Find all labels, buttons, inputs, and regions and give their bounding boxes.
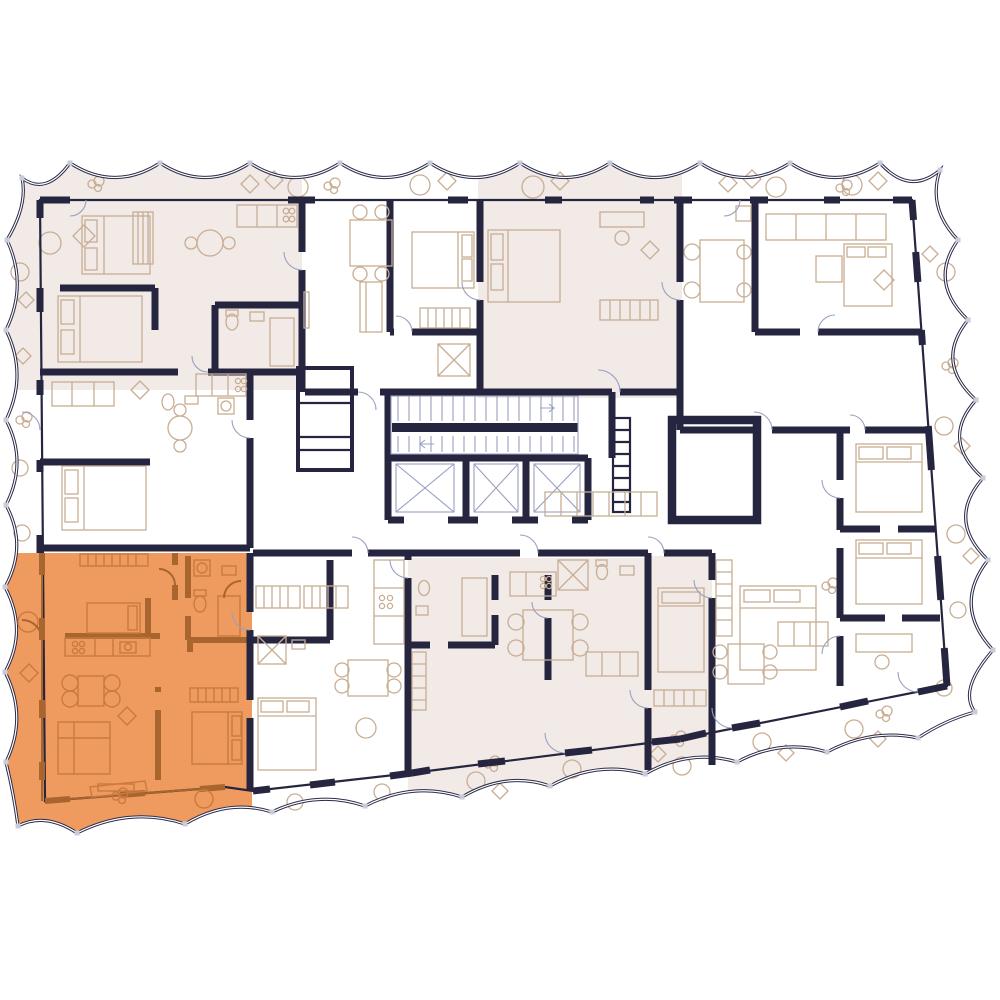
unit-bottom-center[interactable] (408, 553, 648, 773)
unit-left-middle[interactable] (40, 372, 250, 548)
unit-highlighted[interactable] (2, 553, 252, 843)
unit-top-right[interactable] (680, 200, 921, 332)
unit-top-center[interactable] (480, 200, 680, 392)
floor-plan (0, 0, 1000, 1000)
floor-plan-canvas (0, 0, 1000, 1000)
stair-divider (392, 423, 578, 432)
unit-bottom-left-middle[interactable] (253, 553, 408, 791)
unit-bottom-strip[interactable] (648, 553, 712, 765)
unit-bottom-right[interactable] (712, 553, 942, 713)
unit-top-left[interactable] (40, 200, 302, 372)
unit-top-middle[interactable] (302, 200, 480, 392)
